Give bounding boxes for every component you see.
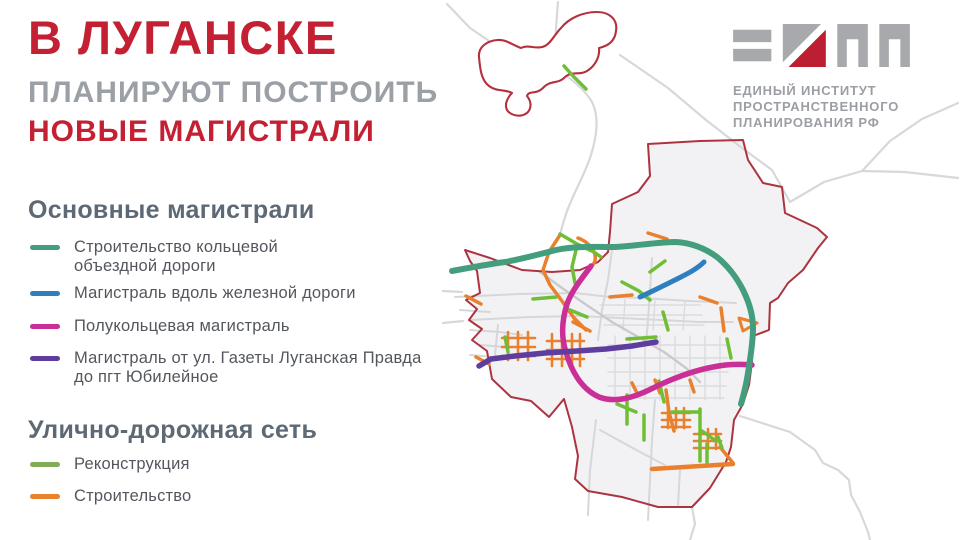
- highway-road: [740, 416, 870, 540]
- legend-item-label: Строительство: [74, 487, 191, 506]
- legend-item-label: Строительство кольцевой объездной дороги: [74, 238, 278, 276]
- construction-segment: [610, 295, 632, 297]
- legend-item-label: Реконструкция: [74, 455, 190, 474]
- institute-logo: ЕДИНЫЙ ИНСТИТУТ ПРОСТРАНСТВЕННОГО ПЛАНИР…: [733, 24, 943, 131]
- city-area: [465, 140, 827, 507]
- legend-item-rail-highway: Магистраль вдоль железной дороги: [30, 284, 356, 303]
- legend-item-semi-ring: Полукольцевая магистраль: [30, 317, 290, 336]
- gazeta-route-swatch-icon: [30, 356, 60, 361]
- rail-highway-swatch-icon: [30, 291, 60, 296]
- legend-item-ring-road: Строительство кольцевой объездной дороги: [30, 238, 278, 276]
- reconstruction-segment: [572, 250, 576, 283]
- highway-road: [690, 507, 695, 540]
- infographic: В ЛУГАНСКЕ ПЛАНИРУЮТ ПОСТРОИТЬ НОВЫЕ МАГ…: [0, 0, 960, 540]
- legend-item-reconstruction: Реконструкция: [30, 455, 190, 474]
- legend: Основные магистрали Строительство кольце…: [0, 0, 470, 540]
- highway-road: [790, 171, 958, 202]
- legend-item-construction: Строительство: [30, 487, 191, 506]
- reconstruction-swatch-icon: [30, 462, 60, 467]
- legend-item-label: Магистраль от ул. Газеты Луганская Правд…: [74, 349, 422, 387]
- highway-road: [552, 66, 596, 234]
- ring-road-swatch-icon: [30, 245, 60, 250]
- reconstruction-segment: [533, 297, 556, 299]
- legend-heading-street-network: Улично-дорожная сеть: [28, 416, 317, 445]
- legend-item-gazeta-route: Магистраль от ул. Газеты Луганская Правд…: [30, 349, 422, 387]
- legend-item-label: Полукольцевая магистраль: [74, 317, 290, 336]
- institute-name: ЕДИНЫЙ ИНСТИТУТ ПРОСТРАНСТВЕННОГО ПЛАНИР…: [733, 83, 943, 131]
- reconstruction-segment: [627, 337, 656, 339]
- legend-item-label: Магистраль вдоль железной дороги: [74, 284, 356, 303]
- construction-swatch-icon: [30, 494, 60, 499]
- legend-heading-main-highways: Основные магистрали: [28, 196, 315, 225]
- semi-ring-swatch-icon: [30, 324, 60, 329]
- settlement-boundary: [479, 12, 616, 116]
- eipp-monogram-icon: [733, 24, 910, 67]
